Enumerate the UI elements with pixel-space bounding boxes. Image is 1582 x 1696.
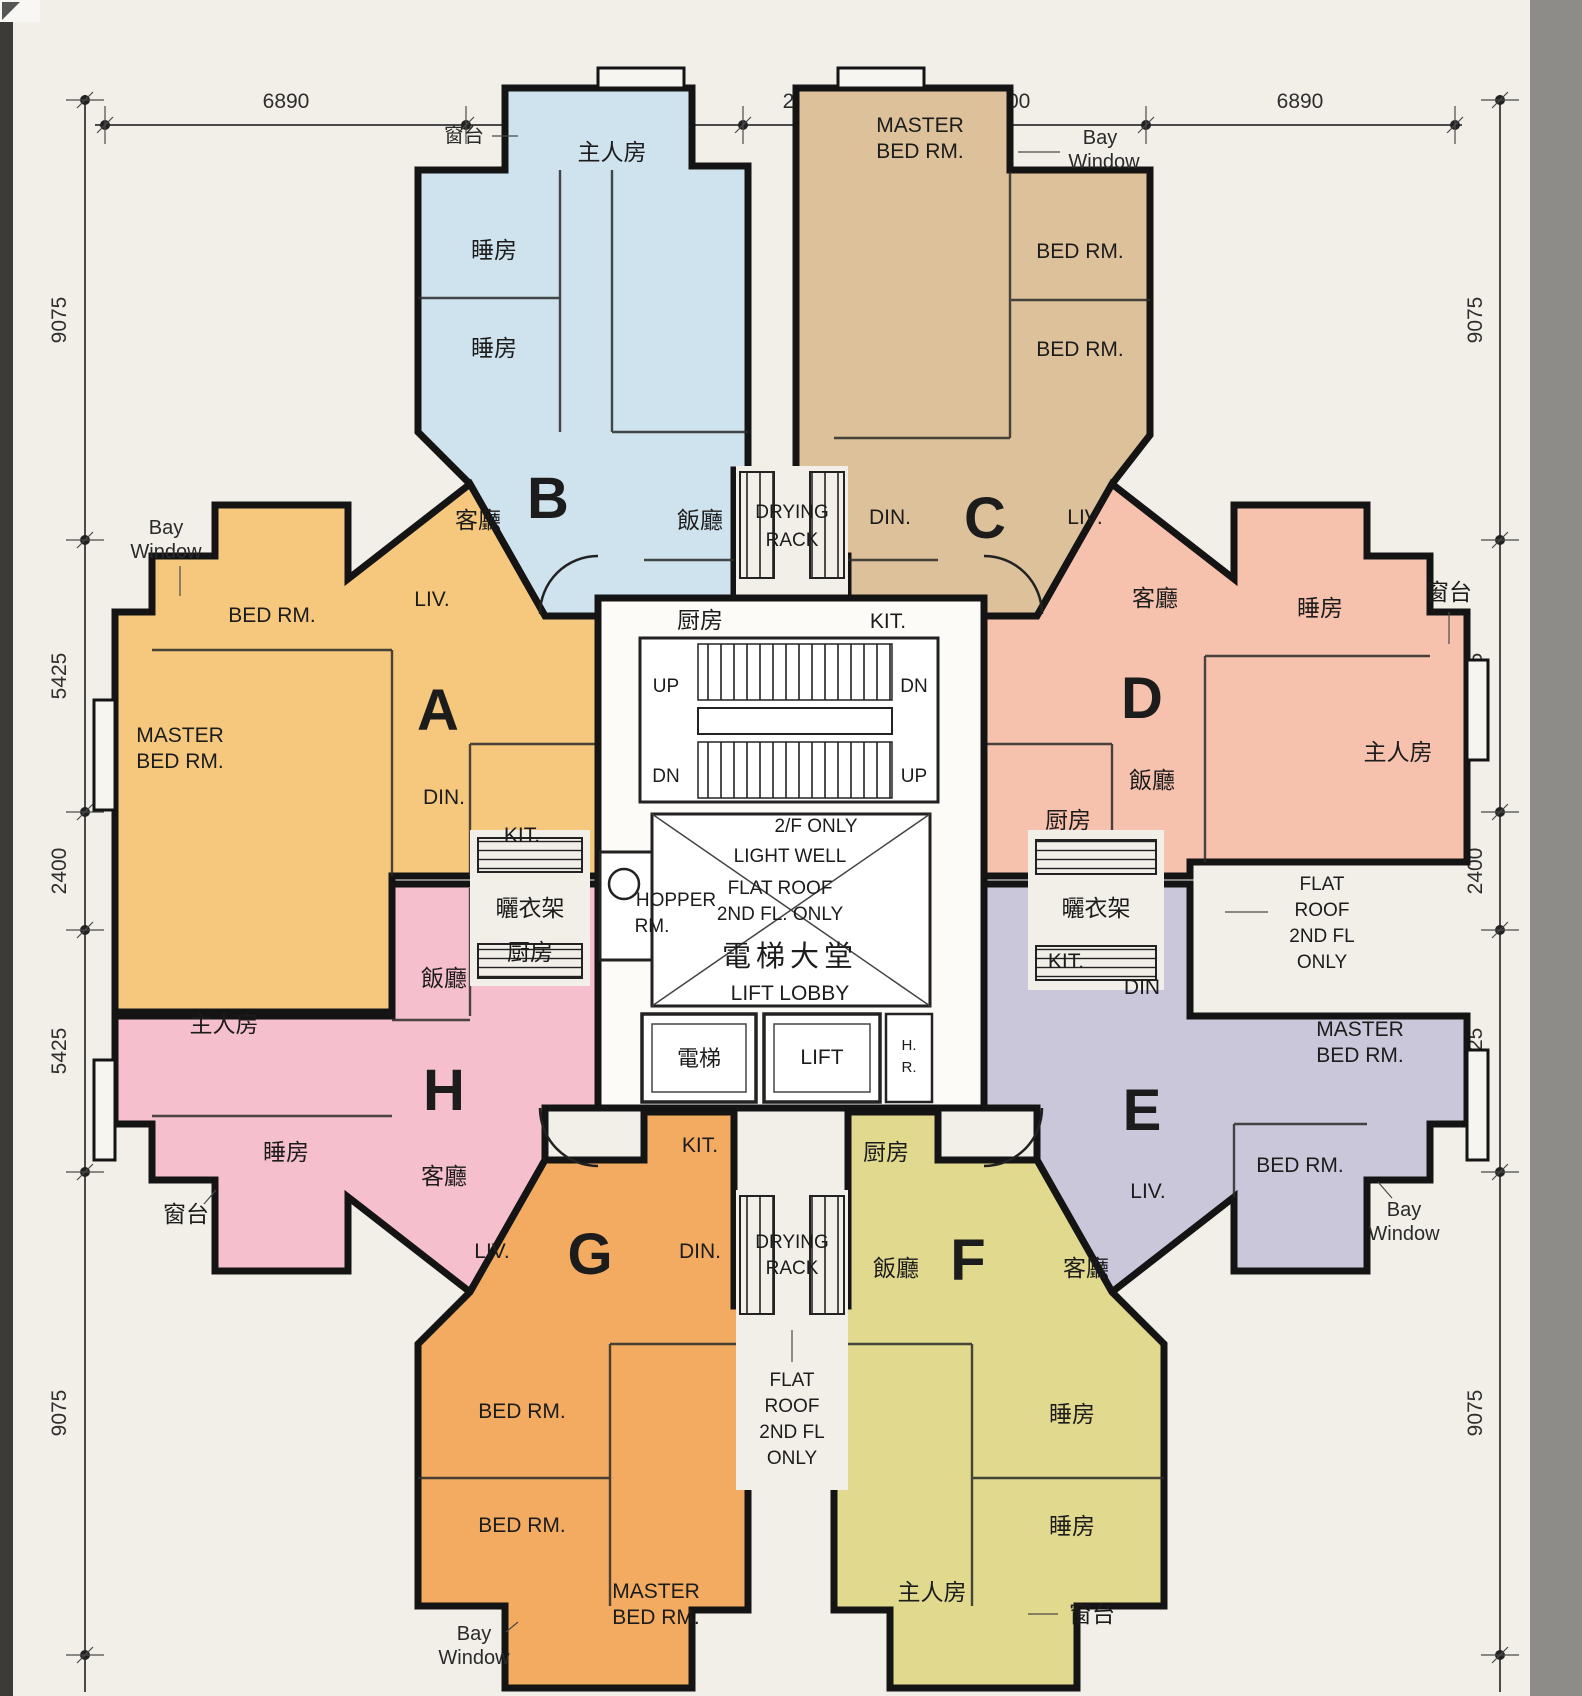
- a-master-label-1: MASTER: [136, 724, 224, 747]
- bay-window-b: [598, 68, 684, 88]
- hopper-label-1: HOPPER: [636, 890, 716, 911]
- c-master-label-2: BED RM.: [876, 140, 964, 163]
- flat-roof-core-label-2: 2ND FL. ONLY: [717, 904, 844, 925]
- unit-letter-c: C: [964, 486, 1006, 551]
- c-bedroom2-label: BED RM.: [1036, 338, 1124, 361]
- drying-rack-top-left: [740, 472, 774, 578]
- e-dining-label: DIN: [1124, 976, 1160, 999]
- unit-letter-e: E: [1123, 1078, 1162, 1143]
- staircase: UP DN DN UP: [640, 638, 938, 802]
- e-bedroom-label: BED RM.: [1256, 1154, 1344, 1177]
- flat-roof-east-label-4: ONLY: [1297, 952, 1348, 973]
- a-bay-window-label-1: Bay: [149, 517, 183, 539]
- dim-top-1: 6890: [263, 90, 310, 113]
- a-dining-label: DIN.: [423, 786, 465, 809]
- e-bay-window-label-1: Bay: [1387, 1199, 1421, 1221]
- stair-up-label-se: UP: [901, 766, 927, 787]
- flat-roof-south-label-3: 2ND FL: [759, 1422, 824, 1443]
- h-living-label: 客廳: [421, 1163, 467, 1189]
- c-bedroom1-label: BED RM.: [1036, 240, 1124, 263]
- c-kitchen-label: KIT.: [870, 610, 906, 633]
- flat-roof-east-label-2: ROOF: [1295, 900, 1350, 921]
- h-bay-window-label: 窗台: [163, 1201, 209, 1227]
- hopper-label-2: RM.: [635, 916, 670, 937]
- g-bay-window-label-2: Window: [438, 1647, 510, 1669]
- drying-rack-east-label: 曬衣架: [1062, 895, 1131, 921]
- drying-rack-bottom-label-2: RACK: [766, 1258, 819, 1279]
- h-master-label: 主人房: [190, 1011, 259, 1037]
- lift-en-label: LIFT: [800, 1046, 843, 1069]
- bay-window-h: [94, 1060, 115, 1160]
- b-bedroom2-label: 睡房: [471, 335, 517, 361]
- hose-reel-label-2: R.: [902, 1059, 917, 1076]
- a-living-label: LIV.: [414, 588, 449, 611]
- d-bedroom-label: 睡房: [1297, 595, 1343, 621]
- flat-roof-east-label-1: FLAT: [1299, 874, 1344, 895]
- f-living-label: 客廳: [1063, 1255, 1109, 1281]
- c-bay-window-label-1: Bay: [1083, 127, 1117, 149]
- g-master-label-1: MASTER: [612, 1580, 700, 1603]
- a-kitchen-label: KIT.: [504, 824, 540, 847]
- c-bay-window-label-2: Window: [1068, 151, 1140, 173]
- g-dining-label: DIN.: [679, 1240, 721, 1263]
- lift-shafts: 電梯 LIFT H. R.: [642, 1014, 932, 1102]
- b-bay-window-label: 窗台: [444, 124, 484, 147]
- drying-rack-bottom-left: [740, 1196, 774, 1314]
- d-dining-label: 飯廳: [1129, 767, 1175, 793]
- a-bedroom-label: BED RM.: [228, 604, 316, 627]
- b-master-label: 主人房: [578, 139, 647, 165]
- dim-top-5: 6890: [1277, 90, 1324, 113]
- dim-right-1: 9075: [1464, 297, 1487, 344]
- hose-reel-label-1: H.: [902, 1037, 917, 1054]
- drying-rack-top-right: [810, 472, 844, 578]
- g-living-label: LIV.: [474, 1240, 509, 1263]
- central-core: UP DN DN UP 2/F ONLY LIGHT WELL FLAT ROO…: [540, 556, 1042, 1166]
- h-bedroom-label: 睡房: [263, 1139, 309, 1165]
- dim-left-2: 5425: [48, 653, 71, 700]
- a-bay-window-label-2: Window: [130, 541, 202, 563]
- e-master-label-1: MASTER: [1316, 1018, 1404, 1041]
- lift-lobby-en-label: LIFT LOBBY: [731, 982, 850, 1005]
- h-kitchen-label: 厨房: [507, 939, 553, 965]
- unit-letter-f: F: [950, 1228, 985, 1293]
- floor-plan-svg: 6890 5300 2400 5300 6890 9075 5425 2400 …: [0, 0, 1582, 1696]
- flat-roof-core-label-1: FLAT ROOF: [728, 878, 833, 899]
- dim-right-5: 9075: [1464, 1390, 1487, 1437]
- flat-roof-south-label-2: ROOF: [765, 1396, 820, 1417]
- lift-lobby-cn-label: 電梯大堂: [722, 940, 858, 973]
- stair-dn-label-ne: DN: [900, 676, 927, 697]
- lift-cn-label: 電梯: [677, 1046, 721, 1071]
- unit-letter-g: G: [567, 1222, 612, 1287]
- drying-rack-east-upper: [1036, 840, 1156, 874]
- f-bedroom1-label: 睡房: [1049, 1401, 1095, 1427]
- unit-letter-a: A: [417, 678, 459, 743]
- stair-up-label-nw: UP: [653, 676, 679, 697]
- g-bedroom1-label: BED RM.: [478, 1400, 566, 1423]
- bay-window-d: [1467, 660, 1488, 760]
- c-master-label-1: MASTER: [876, 114, 964, 137]
- unit-letter-d: D: [1121, 666, 1163, 731]
- e-kitchen-label: KIT.: [1048, 950, 1084, 973]
- f-dining-label: 飯廳: [873, 1255, 919, 1281]
- d-master-label: 主人房: [1364, 739, 1433, 765]
- unit-letter-b: B: [527, 466, 569, 531]
- drying-rack-bottom-right: [810, 1196, 844, 1314]
- g-master-label-2: BED RM.: [612, 1606, 700, 1629]
- dim-left-4: 5425: [48, 1028, 71, 1075]
- e-bay-window-label-2: Window: [1368, 1223, 1440, 1245]
- d-kitchen-label: 厨房: [1045, 807, 1091, 833]
- e-master-label-2: BED RM.: [1316, 1044, 1404, 1067]
- e-living-label: LIV.: [1130, 1180, 1165, 1203]
- floor-note-label: 2/F ONLY: [774, 816, 857, 837]
- f-kitchen-label: 厨房: [863, 1139, 909, 1165]
- b-living-label: 客廳: [455, 507, 501, 533]
- bay-window-e: [1467, 1050, 1488, 1160]
- g-bedroom2-label: BED RM.: [478, 1514, 566, 1537]
- drying-rack-bottom-label-1: DRYING: [755, 1232, 829, 1253]
- light-well-label: LIGHT WELL: [734, 846, 847, 867]
- flat-roof-east-label-3: 2ND FL: [1289, 926, 1354, 947]
- f-master-label: 主人房: [898, 1579, 967, 1605]
- h-dining-label: 飯廳: [421, 965, 467, 991]
- drying-rack-west-label: 曬衣架: [496, 895, 565, 921]
- drying-rack-top-label-1: DRYING: [755, 502, 829, 523]
- b-bedroom1-label: 睡房: [471, 237, 517, 263]
- d-living-label: 客廳: [1132, 585, 1178, 611]
- stair-dn-label-sw: DN: [652, 766, 679, 787]
- scan-edge-left: [0, 0, 13, 1696]
- c-dining-label: DIN.: [869, 506, 911, 529]
- f-bedroom2-label: 睡房: [1049, 1513, 1095, 1539]
- scan-edge-right: [1530, 0, 1582, 1696]
- a-master-label-2: BED RM.: [136, 750, 224, 773]
- dim-left-5: 9075: [48, 1390, 71, 1437]
- dim-left-3: 2400: [48, 848, 71, 895]
- b-dining-label: 飯廳: [677, 507, 723, 533]
- drying-rack-top-label-2: RACK: [766, 530, 819, 551]
- dim-left-1: 9075: [48, 297, 71, 344]
- g-bay-window-label-1: Bay: [457, 1623, 491, 1645]
- floor-plan-page: 6890 5300 2400 5300 6890 9075 5425 2400 …: [0, 0, 1582, 1696]
- unit-letter-h: H: [423, 1058, 465, 1123]
- bay-window-c: [838, 68, 924, 88]
- f-bay-window-label: 窗台: [1069, 1601, 1115, 1627]
- d-bay-window-label: 窗台: [1426, 579, 1472, 605]
- c-living-label: LIV.: [1067, 506, 1102, 529]
- b-kitchen-label: 厨房: [677, 607, 723, 633]
- flat-roof-south-label-1: FLAT: [769, 1370, 814, 1391]
- flat-roof-south-label-4: ONLY: [767, 1448, 818, 1469]
- bay-window-a: [94, 700, 115, 810]
- g-kitchen-label: KIT.: [682, 1134, 718, 1157]
